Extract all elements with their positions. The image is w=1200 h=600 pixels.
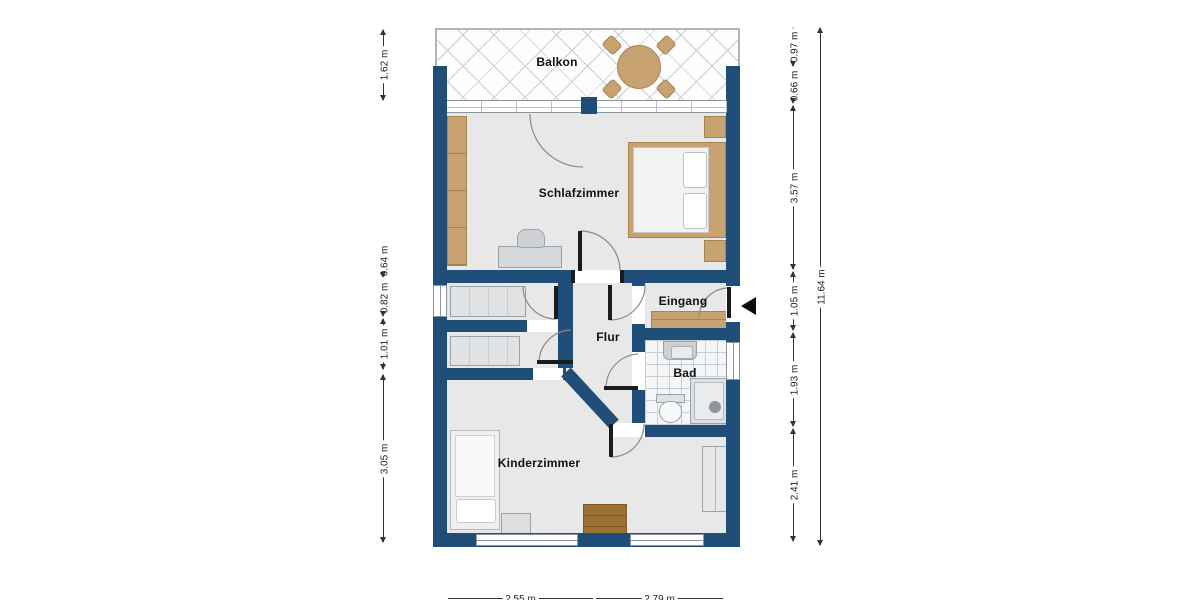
dim-label: 1.05 m [789,283,800,320]
shower [690,378,728,424]
dim-label: 11.64 m [816,266,827,307]
sink [663,341,697,360]
shower-head [709,401,721,413]
dim-label: 0.66 m [789,67,800,104]
dim-label: 2.41 m [789,467,800,504]
pillow [683,152,707,188]
mattress [455,435,495,497]
door-opening-bath [632,352,645,390]
wall [433,66,447,102]
single-bed [450,430,500,530]
door-opening-bedroom [574,270,622,283]
window-bottom-right [630,534,704,546]
dim-right-4: 1.05 m [793,272,794,330]
shelf-divider [715,447,716,511]
dim-right-total: 11.64 m [820,28,821,545]
nightstand [704,116,726,138]
wall-right [726,100,740,547]
room-label-balkon: Balkon [536,55,577,69]
room-label-flur: Flur [596,330,619,344]
door-opening-entrance [726,286,740,322]
door-opening-closet-upper [527,320,558,332]
dim-label: 1.62 m [379,47,390,84]
toilet-bowl [659,401,682,423]
dim-left-3: 0.82 m [383,280,384,316]
room-label-schlafzimmer: Schlafzimmer [539,186,619,200]
dim-label: 2.55 m [502,594,539,600]
room-label-bad: Bad [673,366,696,380]
pillow [683,193,707,229]
wall-pier [581,97,597,114]
dim-bottom-2: 2.79 m [596,598,723,599]
sideboard [651,311,729,329]
door-opening-closet-lower [533,368,563,380]
closet-shelf [450,336,520,366]
dim-label: 1.01 m [379,326,390,363]
sink-basin [671,346,693,359]
entrance-arrow-icon [741,297,756,315]
double-bed [628,142,726,238]
dim-label: 0.82 m [379,280,390,317]
shower-tray [694,382,724,420]
wall-entry-bath [645,328,727,340]
dim-label: 3.05 m [379,440,390,477]
room-label-kinderzimmer: Kinderzimmer [498,456,580,470]
wall-closet-right [558,283,573,368]
dim-label: 3.57 m [789,169,800,206]
dim-label: 0.97 m [789,29,800,66]
dim-bottom-1: 2.55 m [448,598,593,599]
floor-plan: Balkon Schlafzimmer Eingang Flur Bad Kin… [0,0,1200,600]
nightstand [501,513,531,535]
window-bottom-left [476,534,578,546]
wardrobe [447,116,467,266]
balcony-table [617,45,661,89]
dim-right-5: 1.93 m [793,333,794,426]
balcony-floor [435,28,740,105]
pillow [456,499,496,523]
door-opening-kidsroom [612,423,645,437]
room-label-eingang: Eingang [659,294,708,308]
shelf [702,446,728,512]
toilet [656,394,685,424]
door-opening-entry [632,286,645,324]
dim-label: 2.79 m [641,594,678,600]
dim-right-6: 2.41 m [793,429,794,541]
dim-left-4: 1.01 m [383,319,384,369]
closet-shelf [450,286,526,317]
dim-right-1: 0.97 m [793,28,794,66]
wall [726,66,740,102]
dim-label: 0.64 m [379,242,390,279]
window-bath [726,342,740,380]
desk-chair [517,229,545,248]
dim-right-2: 0.66 m [793,68,794,103]
dim-left-1: 1.62 m [383,30,384,100]
nightstand [704,240,726,262]
desk [498,246,562,268]
wall-left [433,100,447,547]
dim-left-5: 3.05 m [383,375,384,542]
window-left [433,285,447,317]
dim-right-3: 3.57 m [793,106,794,269]
dim-left-2: 0.64 m [383,244,384,277]
wall-bath-bottom [645,425,727,437]
dim-label: 1.93 m [789,361,800,398]
